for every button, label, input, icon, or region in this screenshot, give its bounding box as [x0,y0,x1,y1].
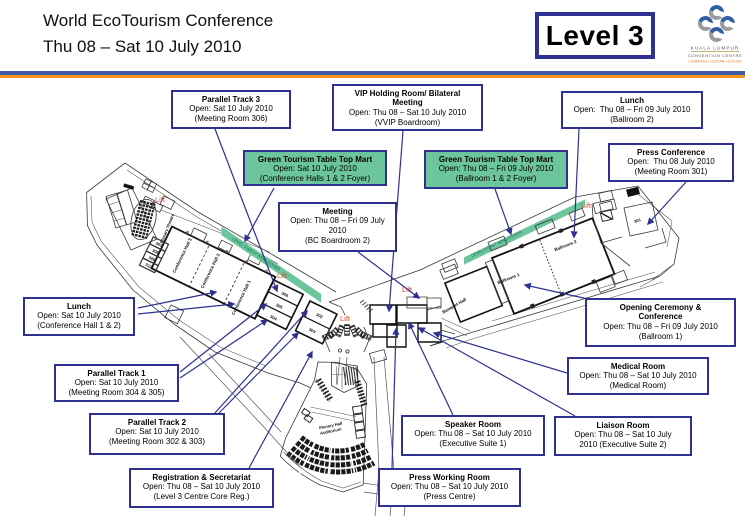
svg-text:Conference Hall 2: Conference Hall 2 [200,252,221,289]
svg-text:Conference Hall 1: Conference Hall 1 [231,279,252,316]
svg-text:305: 305 [275,302,284,310]
svg-text:Conference Hall 3: Conference Hall 3 [172,237,193,274]
svg-text:306: 306 [281,291,290,299]
svg-text:Plenary Theatre: Plenary Theatre [159,212,176,244]
svg-text:Ballroom 2: Ballroom 2 [554,239,578,252]
svg-text:304: 304 [269,314,278,322]
svg-text:302: 302 [315,312,324,320]
svg-text:Lift: Lift [340,314,351,323]
svg-text:303: 303 [308,327,317,335]
svg-text:Banquet Hall: Banquet Hall [441,297,467,315]
svg-text:Lift: Lift [277,271,288,280]
svg-text:301: 301 [633,217,642,224]
svg-text:Lift: Lift [581,201,592,210]
svg-text:LEVEL 3 WEST WING FOYER: LEVEL 3 WEST WING FOYER [231,236,281,272]
